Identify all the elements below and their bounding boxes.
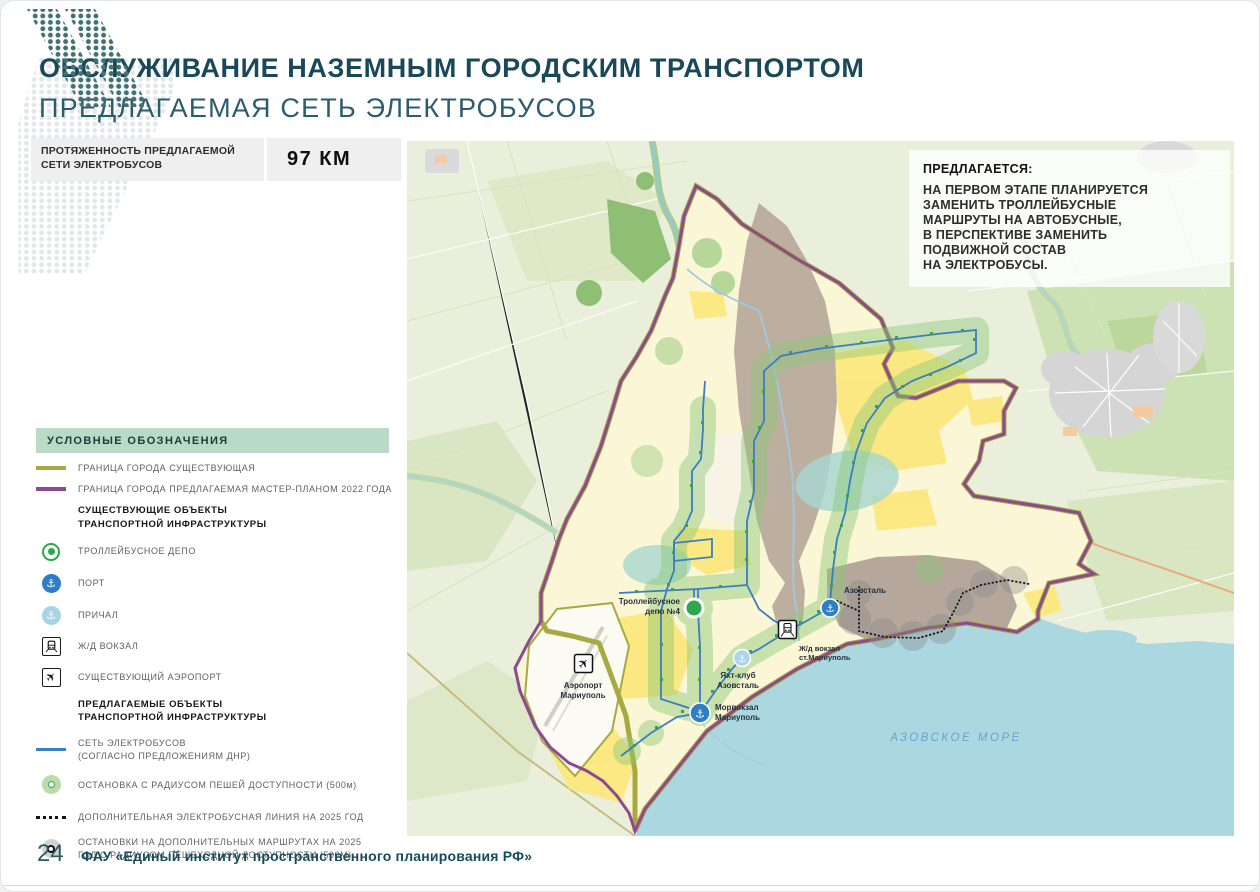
legend-item-airport: ✈ СУЩЕСТВУЮЩИЙ АЭРОПОРТ: [36, 668, 398, 687]
legend: ГРАНИЦА ГОРОДА СУЩЕСТВУЮЩАЯ ГРАНИЦА ГОРО…: [36, 453, 398, 861]
svg-text:⚓: ⚓: [826, 604, 835, 615]
proposal-note-title: ПРЕДЛАГАЕТСЯ:: [923, 162, 1216, 176]
map-yacht-club-anchor-icon: ⚓: [734, 650, 751, 667]
map-label-airport: Аэропорт: [564, 681, 603, 690]
map-label-sea: АЗОВСКОЕ МОРЕ: [889, 732, 1021, 744]
legend-item-port: ⚓ ПОРТ: [36, 574, 398, 593]
map-azovstal-anchor-icon: ⚓: [821, 599, 839, 617]
institute-logo-dots-icon: [25, 7, 150, 109]
legend-item-existing-boundary: ГРАНИЦА ГОРОДА СУЩЕСТВУЮЩАЯ: [36, 462, 398, 475]
dotted-line-icon: [36, 816, 66, 819]
stat-label: ПРОТЯЖЕННОСТЬ ПРЕДЛАГАЕМОЙ СЕТИ ЭЛЕКТРОБ…: [41, 145, 254, 173]
legend-item-stop-radius: ОСТАНОВКА С РАДИУСОМ ПЕШЕЙ ДОСТУПНОСТИ (…: [36, 775, 398, 794]
airplane-icon: ✈: [36, 668, 66, 687]
legend-header: УСЛОВНЫЕ ОБОЗНАЧЕНИЯ: [36, 428, 389, 453]
city-map: ⚓ ⚓ ⚓: [407, 141, 1234, 836]
legend-item-network: СЕТЬ ЭЛЕКТРОБУСОВ (СОГЛАСНО ПРЕДЛОЖЕНИЯМ…: [36, 737, 398, 762]
train-icon: [36, 637, 66, 656]
legend-item-additional-line: ДОПОЛНИТЕЛЬНАЯ ЭЛЕКТРОБУСНАЯ ЛИНИЯ НА 20…: [36, 811, 398, 824]
svg-text:ст.Мариуполь: ст.Мариуполь: [799, 653, 851, 662]
trolleybus-depot-icon: [36, 543, 66, 561]
map-airport-icon: ✈: [575, 655, 594, 674]
map-seaport-anchor-icon: ⚓: [690, 703, 710, 723]
page-title: ОБСЛУЖИВАНИЕ НАЗЕМНЫМ ГОРОДСКИМ ТРАНСПОР…: [39, 53, 865, 84]
stat-label-box: ПРОТЯЖЕННОСТЬ ПРЕДЛАГАЕМОЙ СЕТИ ЭЛЕКТРОБ…: [31, 138, 264, 181]
svg-text:депо №4: депо №4: [645, 607, 680, 616]
proposal-note: ПРЕДЛАГАЕТСЯ: НА ПЕРВОМ ЭТАПЕ ПЛАНИРУЕТС…: [909, 150, 1230, 287]
stop-radius-icon: [36, 775, 66, 794]
map-label-rail-station: Ж/д вокзал: [798, 644, 840, 653]
page-number: 24: [37, 840, 64, 868]
pier-anchor-icon: ⚓: [36, 606, 66, 625]
proposal-note-body: НА ПЕРВОМ ЭТАПЕ ПЛАНИРУЕТСЯ ЗАМЕНИТЬ ТРО…: [923, 183, 1216, 273]
legend-subheader-proposed: ПРЕДЛАГАЕМЫЕ ОБЪЕКТЫ ТРАНСПОРТНОЙ ИНФРАС…: [78, 698, 398, 726]
footer-organization: ФАУ «Единый институт пространственного п…: [81, 848, 532, 864]
stat-value: 97 КМ: [287, 148, 351, 171]
map-label-depot: Троллейбусное: [619, 597, 681, 606]
map-label-azovstal: Азовсталь: [844, 586, 886, 595]
svg-text:⚓: ⚓: [738, 654, 747, 665]
slide: ОБСЛУЖИВАНИЕ НАЗЕМНЫМ ГОРОДСКИМ ТРАНСПОР…: [0, 0, 1260, 892]
legend-item-trolleybus-depot: ТРОЛЛЕЙБУСНОЕ ДЕПО: [36, 543, 398, 561]
map-label-seaport: Морвокзал: [715, 703, 759, 712]
legend-item-rail-station: Ж/Д ВОКЗАЛ: [36, 637, 398, 656]
svg-text:Азовсталь: Азовсталь: [717, 681, 759, 690]
legend-subheader-existing: СУЩЕСТВУЮЩИЕ ОБЪЕКТЫ ТРАНСПОРТНОЙ ИНФРАС…: [78, 504, 398, 532]
legend-item-proposed-boundary: ГРАНИЦА ГОРОДА ПРЕДЛАГАЕМАЯ МАСТЕР-ПЛАНО…: [36, 483, 398, 496]
bottom-rule: [1, 885, 1259, 886]
electrobus-network-line-icon: [36, 748, 66, 751]
port-anchor-icon: ⚓: [36, 574, 66, 593]
map-depot-icon: [684, 598, 705, 619]
legend-item-pier: ⚓ ПРИЧАЛ: [36, 606, 398, 625]
map-label-yacht-club: Яхт-клуб: [720, 671, 755, 680]
svg-text:Мариуполь: Мариуполь: [561, 691, 606, 700]
legend-title: УСЛОВНЫЕ ОБОЗНАЧЕНИЯ: [47, 435, 229, 447]
stat-value-box: 97 КМ: [267, 138, 401, 181]
proposed-boundary-line-icon: [36, 487, 66, 491]
map-rail-station-icon: [779, 621, 797, 639]
existing-boundary-line-icon: [36, 466, 66, 470]
svg-text:Мариуполь: Мариуполь: [715, 713, 760, 722]
svg-text:⚓: ⚓: [695, 708, 705, 721]
